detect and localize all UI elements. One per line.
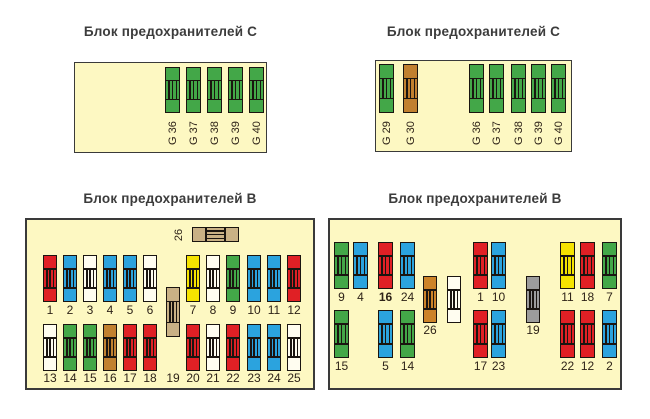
- fuse-element-line: [257, 337, 259, 358]
- fuse-21: [206, 324, 220, 371]
- fuse-element-line: [554, 78, 556, 100]
- fuse-element-line: [480, 255, 482, 276]
- fuse-label-26: 26: [173, 220, 185, 250]
- fuse-element-line: [297, 337, 299, 358]
- fuse-element-line: [562, 78, 564, 100]
- fuse-label-G 36: G 36: [167, 113, 179, 153]
- fuse-element-line: [484, 255, 486, 276]
- fuse-element-line: [93, 268, 95, 289]
- fuse-element-line: [205, 230, 226, 232]
- fuse-9: [334, 242, 349, 289]
- fuse-element-line: [149, 268, 151, 289]
- fuse-element-line: [176, 301, 178, 323]
- fuse-element-line: [113, 337, 115, 358]
- fuse-element-line: [411, 323, 413, 344]
- fuse-element-line: [216, 337, 218, 358]
- fuse-element-line: [498, 323, 500, 344]
- fuse-element-line: [457, 289, 459, 310]
- fuse-element-line: [472, 78, 474, 100]
- fuse-2: [602, 310, 617, 358]
- fuse-G 37: [186, 67, 201, 113]
- fuse-element-line: [345, 323, 347, 344]
- fuse-label-6: 6: [136, 304, 164, 316]
- fuse-element-line: [583, 255, 585, 276]
- fuse-element-line: [277, 268, 279, 289]
- fuse-element-line: [236, 268, 238, 289]
- fuse-25: [287, 324, 301, 371]
- fuse-element-line: [86, 337, 88, 358]
- fuse-element-line: [364, 255, 366, 276]
- fuse-element-line: [49, 337, 51, 358]
- fuse-label-G 39: G 39: [230, 113, 242, 153]
- fuse-element-line: [492, 78, 494, 100]
- fuse-G 40: [551, 64, 566, 113]
- fuse-element-line: [172, 80, 174, 100]
- fuse-18: [580, 242, 595, 289]
- fuse-G 38: [511, 64, 526, 113]
- fuse-element-line: [605, 323, 607, 344]
- fuse-element-line: [390, 78, 392, 100]
- fuse-24: [400, 242, 415, 289]
- fuse-element-line: [341, 323, 343, 344]
- fuse-element-line: [53, 337, 55, 358]
- fuse-element-line: [360, 255, 362, 276]
- fuse-element-line: [133, 337, 135, 358]
- fuse-element-line: [609, 255, 611, 276]
- fuse-19: [166, 287, 180, 337]
- fuse-G 39: [228, 67, 243, 113]
- fuse-element-line: [476, 255, 478, 276]
- fuse-element-line: [587, 323, 589, 344]
- fuse-G 38: [207, 67, 222, 113]
- panel-title-fusebox-c-right: Блок предохранителей C: [375, 24, 572, 39]
- fuse-element-line: [514, 78, 516, 100]
- fuse-label-26: 26: [416, 324, 444, 336]
- fuse-element-line: [293, 337, 295, 358]
- fuse-element-line: [337, 323, 339, 344]
- fuse-element-line: [109, 337, 111, 358]
- fuse-label-23: 23: [485, 360, 513, 372]
- fuse-label-G 38: G 38: [513, 113, 525, 153]
- fuse-element-line: [410, 78, 412, 100]
- fuse-element-line: [189, 80, 191, 100]
- fuse-element-line: [529, 289, 531, 310]
- fuse-element-line: [196, 268, 198, 289]
- fuse-G 37: [489, 64, 504, 113]
- fuse-element-line: [571, 323, 573, 344]
- fuse-label-2: 2: [596, 360, 624, 372]
- fuse-14: [63, 324, 77, 371]
- fuse-1: [43, 255, 57, 302]
- fuse-element-line: [109, 268, 111, 289]
- fuse-element-line: [46, 268, 48, 289]
- fuse-element-line: [407, 255, 409, 276]
- fuse-element-line: [212, 337, 214, 358]
- fuse-element-line: [69, 337, 71, 358]
- fuse-element-line: [197, 80, 199, 100]
- fuse-element-line: [205, 238, 226, 240]
- fuse-element-line: [290, 337, 292, 358]
- fuse-element-line: [214, 80, 216, 100]
- fuse-10: [247, 255, 261, 302]
- fuse-element-line: [189, 337, 191, 358]
- fuse-element-line: [433, 289, 435, 310]
- fuse-element-line: [345, 255, 347, 276]
- panel-title-fusebox-c-left: Блок предохранителей C: [74, 24, 267, 39]
- fuse-element-line: [53, 268, 55, 289]
- fuse-label-15: 15: [328, 360, 356, 372]
- fuse-element-line: [591, 323, 593, 344]
- fuse-element-line: [591, 255, 593, 276]
- fuse-5: [378, 310, 393, 358]
- fuse-element-line: [476, 323, 478, 344]
- fuse-element-line: [429, 289, 431, 310]
- fuse-element-line: [542, 78, 544, 100]
- fuse-element-line: [113, 268, 115, 289]
- fuse-label-10: 10: [485, 291, 513, 303]
- fuse-element-line: [146, 337, 148, 358]
- fuse-element-line: [210, 80, 212, 100]
- fuse-element-line: [522, 78, 524, 100]
- fuse-element-line: [73, 337, 75, 358]
- fuse-element-line: [450, 289, 452, 310]
- fuse-element-line: [89, 268, 91, 289]
- fuse-element-line: [406, 78, 408, 100]
- fuse-element-line: [212, 268, 214, 289]
- fuse-label-G 40: G 40: [251, 113, 263, 153]
- fuse-label-25: 25: [280, 372, 308, 384]
- fuse-element-line: [250, 337, 252, 358]
- panel-frame-fusebox-b-left: 2612345678910111219131415161718202122232…: [25, 218, 315, 390]
- fuse-element-line: [518, 78, 520, 100]
- fuse-label-G 37: G 37: [188, 113, 200, 153]
- fuse-element-line: [613, 323, 615, 344]
- fuse-element-line: [609, 323, 611, 344]
- fuse-element-line: [605, 255, 607, 276]
- fuse-26: [423, 276, 437, 323]
- fuse-element-line: [89, 337, 91, 358]
- fuse-blank: [447, 276, 461, 323]
- fuse-label-G 38: G 38: [209, 113, 221, 153]
- fuse-element-line: [231, 80, 233, 100]
- fuse-element-line: [232, 268, 234, 289]
- fuse-element-line: [256, 80, 258, 100]
- fuse-element-line: [168, 80, 170, 100]
- fuse-element-line: [403, 255, 405, 276]
- fuse-element-line: [193, 80, 195, 100]
- fuse-element-line: [66, 268, 68, 289]
- fuse-element-line: [229, 337, 231, 358]
- fuse-element-line: [411, 255, 413, 276]
- fuse-element-line: [273, 268, 275, 289]
- fuse-element-line: [153, 268, 155, 289]
- fuse-element-line: [502, 323, 504, 344]
- fuse-element-line: [216, 268, 218, 289]
- fuse-element-line: [386, 78, 388, 100]
- fuse-8: [206, 255, 220, 302]
- fuse-11: [560, 242, 575, 289]
- fuse-element-line: [273, 337, 275, 358]
- fuse-label-4: 4: [347, 291, 375, 303]
- fuse-G 39: [531, 64, 546, 113]
- fuse-element-line: [192, 268, 194, 289]
- fuse-16: [103, 324, 117, 371]
- fuse-element-line: [126, 337, 128, 358]
- fuse-element-line: [133, 268, 135, 289]
- fuse-element-line: [232, 337, 234, 358]
- fuse-element-line: [293, 268, 295, 289]
- fuse-element-line: [129, 268, 131, 289]
- fuse-element-line: [253, 337, 255, 358]
- fuse-element-line: [192, 337, 194, 358]
- fuse-element-line: [563, 323, 565, 344]
- fuse-26: [192, 227, 239, 242]
- fuse-element-line: [403, 323, 405, 344]
- fuse-label-G 39: G 39: [533, 113, 545, 153]
- fusebox-diagram: Блок предохранителей C G 36G 37G 38G 39G…: [0, 0, 650, 419]
- fuse-label-18: 18: [136, 372, 164, 384]
- fuse-element-line: [532, 289, 534, 310]
- fuse-element-line: [500, 78, 502, 100]
- fuse-element-line: [235, 80, 237, 100]
- panel-frame-fusebox-c-right: G 29G 30G 36G 37G 38G 39G 40: [375, 60, 572, 152]
- fuse-element-line: [169, 301, 171, 323]
- fuse-element-line: [385, 255, 387, 276]
- fuse-label-G 29: G 29: [381, 113, 393, 153]
- fuse-element-line: [69, 268, 71, 289]
- fuse-element-line: [277, 337, 279, 358]
- fuse-element-line: [453, 289, 455, 310]
- fuse-3: [83, 255, 97, 302]
- fuse-element-line: [106, 268, 108, 289]
- fuse-element-line: [209, 337, 211, 358]
- fuse-label-19: 19: [519, 324, 547, 336]
- fuse-20: [186, 324, 200, 371]
- fuse-22: [226, 324, 240, 371]
- fuse-1: [473, 242, 488, 289]
- fuse-element-line: [389, 255, 391, 276]
- fuse-G 36: [469, 64, 484, 113]
- fuse-18: [143, 324, 157, 371]
- fuse-element-line: [146, 268, 148, 289]
- fuse-element-line: [480, 323, 482, 344]
- fuse-element-line: [337, 255, 339, 276]
- fuse-4: [353, 242, 368, 289]
- fuse-label-7: 7: [596, 291, 624, 303]
- fuse-element-line: [426, 289, 428, 310]
- fuse-element-line: [196, 337, 198, 358]
- fuse-element-line: [496, 78, 498, 100]
- fuse-7: [602, 242, 617, 289]
- fuse-label-14: 14: [394, 360, 422, 372]
- fuse-9: [226, 255, 240, 302]
- fuse-element-line: [73, 268, 75, 289]
- fuse-element-line: [86, 268, 88, 289]
- fuse-element-line: [476, 78, 478, 100]
- fuse-element-line: [229, 268, 231, 289]
- fuse-14: [400, 310, 415, 358]
- fuse-element-line: [356, 255, 358, 276]
- panel-frame-fusebox-c-left: G 36G 37G 38G 39G 40: [74, 62, 267, 153]
- fuse-element-line: [494, 255, 496, 276]
- fuse-element-line: [534, 78, 536, 100]
- fuse-23: [491, 310, 506, 358]
- fuse-element-line: [563, 255, 565, 276]
- fuse-element-line: [93, 337, 95, 358]
- fuse-24: [267, 324, 281, 371]
- fuse-G 40: [249, 67, 264, 113]
- fuse-element-line: [129, 337, 131, 358]
- fuse-element-line: [381, 255, 383, 276]
- fuse-16: [378, 242, 393, 289]
- fuse-element-line: [494, 323, 496, 344]
- fuse-element-line: [66, 337, 68, 358]
- fuse-13: [43, 324, 57, 371]
- fuse-element-line: [270, 337, 272, 358]
- fuse-element-line: [341, 255, 343, 276]
- fuse-element-line: [389, 323, 391, 344]
- fuse-element-line: [381, 323, 383, 344]
- fuse-element-line: [385, 323, 387, 344]
- fuse-element-line: [189, 268, 191, 289]
- fuse-label-G 30: G 30: [405, 113, 417, 153]
- fuse-17: [123, 324, 137, 371]
- fuse-element-line: [558, 78, 560, 100]
- fuse-element-line: [49, 268, 51, 289]
- fuse-element-line: [252, 80, 254, 100]
- fuse-G 36: [165, 67, 180, 113]
- fuse-element-line: [239, 80, 241, 100]
- fuse-element-line: [250, 268, 252, 289]
- fuse-label-12: 12: [280, 304, 308, 316]
- fuse-element-line: [270, 268, 272, 289]
- panel-title-fusebox-b-left: Блок предохранителей B: [25, 191, 315, 206]
- fuse-label-24: 24: [394, 291, 422, 303]
- fuse-22: [560, 310, 575, 358]
- fuse-label-G 36: G 36: [471, 113, 483, 153]
- fuse-7: [186, 255, 200, 302]
- fuse-element-line: [46, 337, 48, 358]
- fuse-element-line: [536, 289, 538, 310]
- fuse-element-line: [613, 255, 615, 276]
- fuse-10: [491, 242, 506, 289]
- fuse-element-line: [126, 268, 128, 289]
- fuse-element-line: [407, 323, 409, 344]
- fuse-element-line: [209, 268, 211, 289]
- fuse-element-line: [172, 301, 174, 323]
- fuse-element-line: [567, 255, 569, 276]
- fuse-element-line: [176, 80, 178, 100]
- fuse-element-line: [567, 323, 569, 344]
- fuse-element-line: [480, 78, 482, 100]
- fuse-element-line: [106, 337, 108, 358]
- fuse-element-line: [205, 234, 226, 236]
- fuse-element-line: [502, 255, 504, 276]
- fuse-G 30: [403, 64, 418, 113]
- panel-frame-fusebox-b-right: 94162411011187261915514172322122: [328, 218, 622, 390]
- fuse-element-line: [149, 337, 151, 358]
- fuse-12: [580, 310, 595, 358]
- fuse-element-line: [257, 268, 259, 289]
- fuse-12: [287, 255, 301, 302]
- fuse-2: [63, 255, 77, 302]
- panel-title-fusebox-b-right: Блок предохранителей B: [328, 191, 622, 206]
- fuse-element-line: [571, 255, 573, 276]
- fuse-label-G 40: G 40: [553, 113, 565, 153]
- fuse-17: [473, 310, 488, 358]
- fuse-23: [247, 324, 261, 371]
- fuse-element-line: [498, 255, 500, 276]
- fuse-element-line: [587, 255, 589, 276]
- fuse-19: [526, 276, 540, 323]
- fuse-element-line: [414, 78, 416, 100]
- fuse-element-line: [236, 337, 238, 358]
- fuse-label-G 37: G 37: [491, 113, 503, 153]
- fuse-element-line: [253, 268, 255, 289]
- fuse-element-line: [583, 323, 585, 344]
- fuse-6: [143, 255, 157, 302]
- fuse-G 29: [379, 64, 394, 113]
- fuse-5: [123, 255, 137, 302]
- fuse-element-line: [538, 78, 540, 100]
- fuse-15: [83, 324, 97, 371]
- fuse-element-line: [382, 78, 384, 100]
- fuse-element-line: [218, 80, 220, 100]
- fuse-element-line: [290, 268, 292, 289]
- fuse-element-line: [484, 323, 486, 344]
- fuse-element-line: [260, 80, 262, 100]
- fuse-15: [334, 310, 349, 358]
- fuse-element-line: [297, 268, 299, 289]
- fuse-element-line: [153, 337, 155, 358]
- fuse-4: [103, 255, 117, 302]
- fuse-11: [267, 255, 281, 302]
